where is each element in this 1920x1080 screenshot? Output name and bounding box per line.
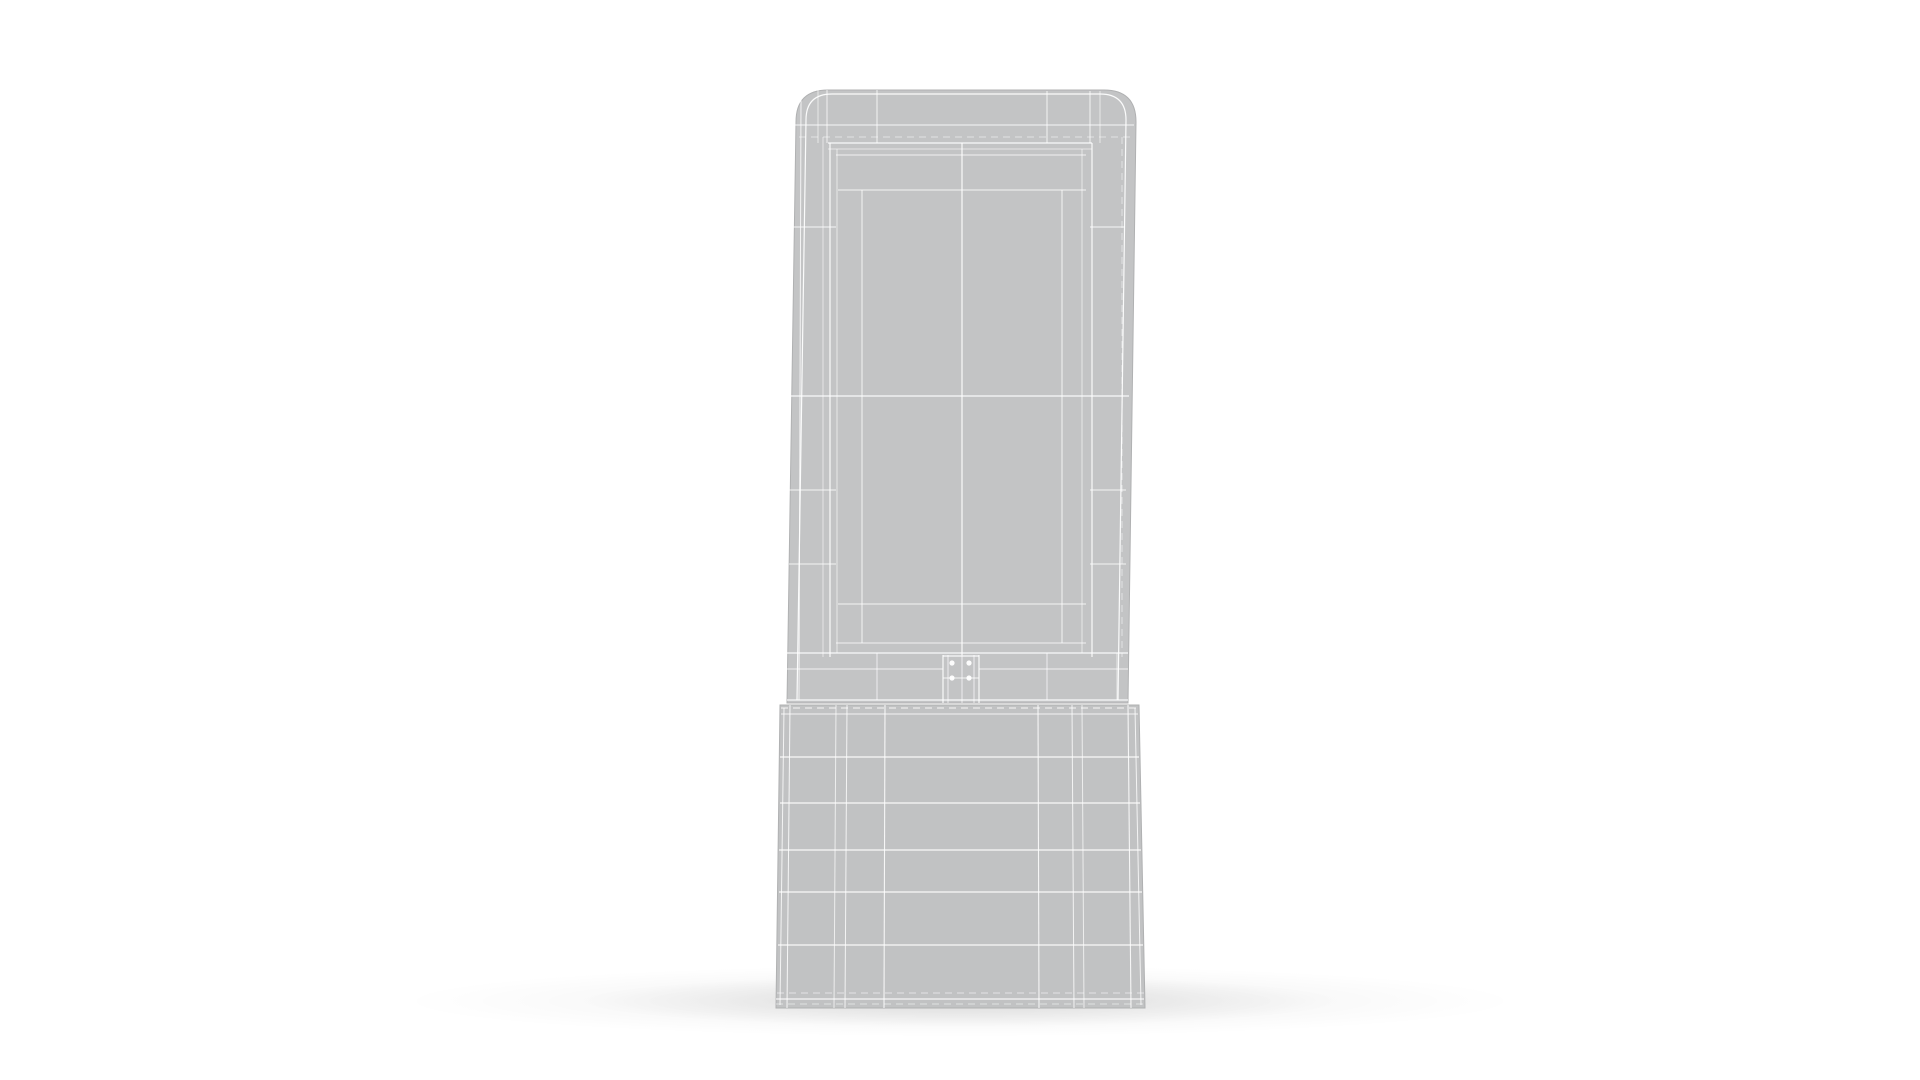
screw-dot bbox=[949, 675, 954, 680]
screw-dot bbox=[949, 660, 954, 665]
kiosk-base-body bbox=[776, 705, 1145, 1008]
render-viewport bbox=[0, 0, 1920, 1080]
kiosk-panel bbox=[787, 90, 1136, 703]
screw-dot bbox=[966, 660, 971, 665]
kiosk-wireframe-render bbox=[0, 0, 1920, 1080]
screw-dot bbox=[966, 675, 971, 680]
kiosk-base bbox=[776, 705, 1145, 1008]
